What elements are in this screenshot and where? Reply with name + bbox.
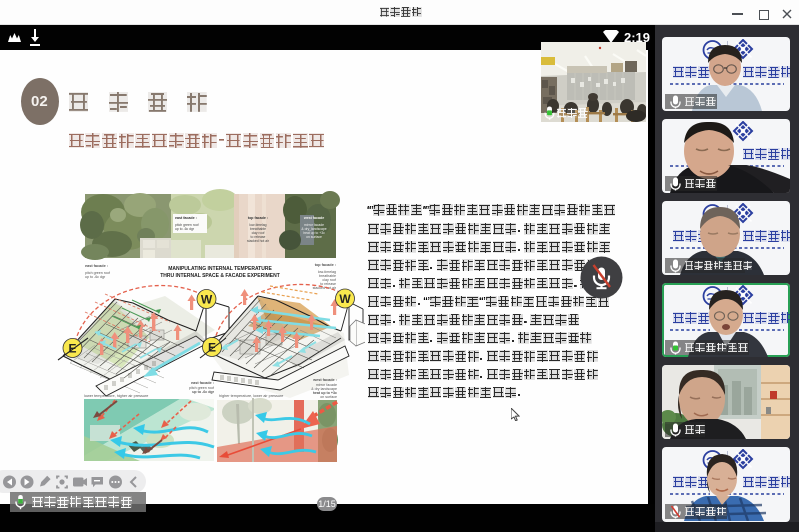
svg-text:W: W	[339, 292, 351, 306]
svg-text:higher temperature, lower air: higher temperature, lower air pressure	[219, 394, 283, 398]
svg-text:east facade :: east facade :	[175, 216, 197, 220]
svg-text:west facade :: west facade :	[312, 378, 337, 382]
svg-text:MANIPULATING INTERNAL TEMPERAT: MANIPULATING INTERNAL TEMPERATURE	[168, 266, 272, 272]
svg-text:THRU INTERNAL SPACE & FACADE E: THRU INTERNAL SPACE & FACADE EXPERIMENT	[160, 273, 280, 279]
svg-text:up to -6c dgr: up to -6c dgr	[192, 390, 214, 394]
svg-text:east facade :: east facade :	[85, 264, 108, 268]
svg-text:stacked hot air: stacked hot air	[247, 239, 270, 243]
svg-text:east facade :: east facade :	[191, 381, 214, 385]
svg-text:on surface: on surface	[306, 235, 322, 239]
svg-text:E: E	[208, 341, 216, 355]
svg-text:up to -6c dgr: up to -6c dgr	[85, 275, 106, 279]
svg-text:W: W	[201, 293, 213, 307]
svg-text:on surface: on surface	[320, 395, 337, 399]
svg-text:lower temperature, higher air: lower temperature, higher air pressure	[84, 394, 148, 398]
svg-text:top facade :: top facade :	[315, 263, 336, 267]
svg-text:west facade: west facade	[303, 216, 324, 220]
svg-text:top facade :: top facade :	[248, 216, 268, 220]
svg-text:E: E	[68, 342, 76, 356]
svg-text:up to -6c dgr: up to -6c dgr	[175, 227, 195, 231]
